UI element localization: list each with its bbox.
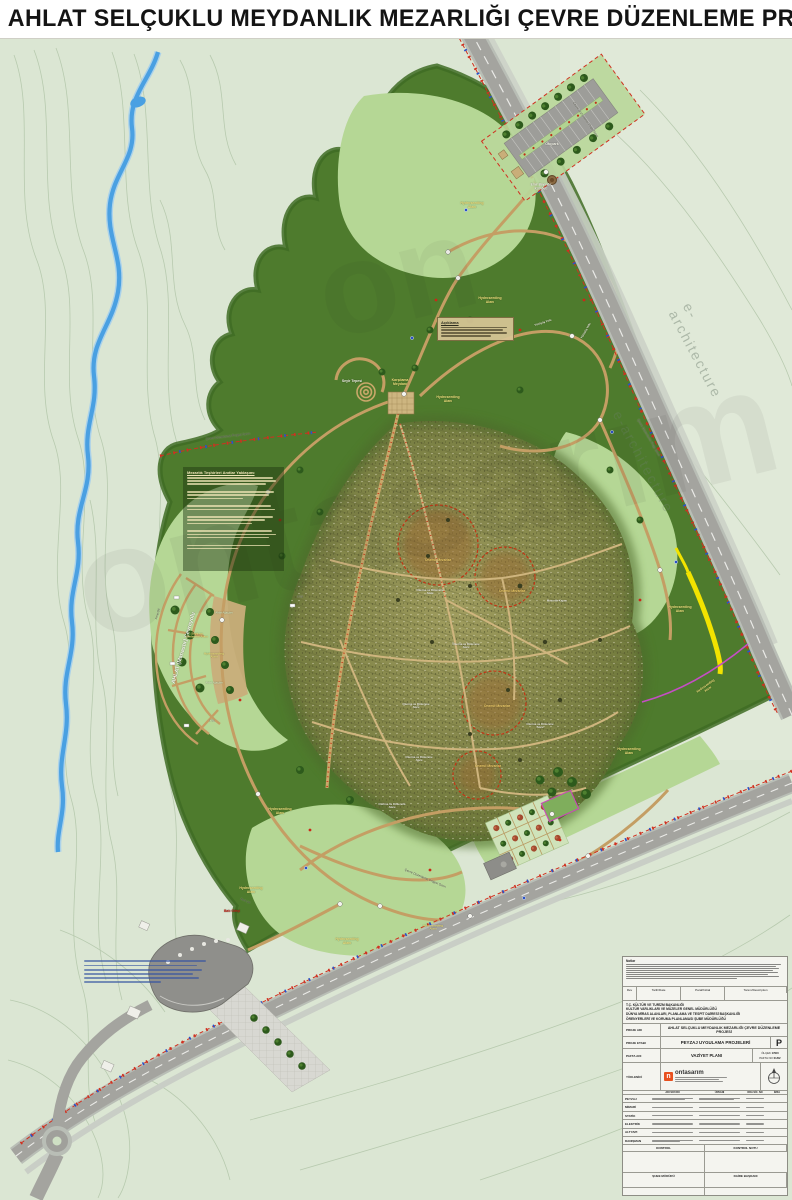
staff-col-sig: İMZA: [767, 1091, 787, 1094]
staff-row-statik: STATİK: [623, 1112, 787, 1120]
signature-section: ŞUBE MÜDÜRÜ DAİRE BAŞKANI: [623, 1173, 787, 1195]
ontasarim-logo-text: ontasarım: [675, 1070, 731, 1076]
staff-row-peyzaj: PEYZAJ: [623, 1095, 787, 1103]
revision-table: Rev Tarih/Date Paraf/Initial Tanım/Descr…: [623, 987, 787, 1001]
sube-muduru-label: ŞUBE MÜDÜRÜ: [623, 1173, 705, 1186]
aciklama-box: Açıklama: [437, 317, 514, 341]
project-name-label: PROJE ADI: [626, 1024, 661, 1036]
title-block-notes: Notlar: [623, 957, 787, 987]
project-stage-row: PROJE ETABI PEYZAJ UYGULAMA PROJELERİ P: [623, 1037, 787, 1049]
staff-row-elektrik: ELEKTRİK: [623, 1120, 787, 1128]
design-notes-box: Mezarlık Teşhirleri Anıtlar Yaklaşımı: [183, 467, 284, 571]
kontrol-section: KONTROL KONTROL NOTU: [623, 1145, 787, 1173]
project-stage-label: PROJE ETABI: [626, 1037, 661, 1048]
aciklama-heading: Açıklama: [441, 320, 510, 325]
ministry-line-4: ÖRENYERLERİ VE KORUMA PLANLAMASI ŞUBE MÜ…: [626, 1017, 784, 1022]
staff-col-title: ÜNVANI: [696, 1091, 743, 1094]
title-block: Notlar Rev Tarih/Date Paraf/Initial Tanı…: [622, 956, 788, 1196]
project-stage-value: PEYZAJ UYGULAMA PROJELERİ: [661, 1037, 770, 1048]
site-plan-sheet: ontasarım on e-architecture e-architectu…: [0, 0, 792, 1200]
contractor-logo: n ontasarım: [661, 1063, 760, 1090]
ontasarim-logo-icon: n: [664, 1072, 673, 1081]
karsilama-meydani-plaza: [388, 392, 414, 414]
staff-col-reg: ODA SİC. NO: [743, 1091, 767, 1094]
stage-code-badge: P: [770, 1037, 787, 1048]
staff-col-name: ADI SOYADI: [649, 1091, 696, 1094]
staff-row-altyapi: ALTYAPI: [623, 1129, 787, 1137]
sheet-name-row: PAFTA ADI VAZİYET PLANI ÖLÇEK 1/500 PAFT…: [623, 1049, 787, 1063]
daire-baskani-label: DAİRE BAŞKANI: [705, 1173, 787, 1186]
project-name-row: PROJE ADI AHLAT SELÇUKLU MEYDANLIK MEZAR…: [623, 1024, 787, 1037]
sheet-title-bar: AHLAT SELÇUKLU MEYDANLIK MEZARLIĞI ÇEVRE…: [0, 0, 792, 39]
staff-row-mimari: MİMARİ: [623, 1103, 787, 1111]
ministry-block: T.C. KÜLTÜR VE TURİZM BAKANLIĞI KÜLTÜR V…: [623, 1001, 787, 1024]
sheet-no-value: 01/02: [774, 1056, 781, 1060]
sheet-name-label: PAFTA ADI: [626, 1049, 661, 1062]
sheet-no-label: PAFTA NO: [759, 1056, 772, 1060]
sheet-title: AHLAT SELÇUKLU MEYDANLIK MEZARLIĞI ÇEVRE…: [0, 5, 792, 33]
project-name-value: AHLAT SELÇUKLU MEYDANLIK MEZARLIĞI ÇEVRE…: [661, 1024, 787, 1036]
north-arrow: [760, 1063, 787, 1090]
kumbet-monument: [548, 176, 557, 185]
contractor-label: YÜKLENİCİ: [626, 1063, 661, 1090]
design-notes-heading: Mezarlık Teşhirleri Anıtlar Yaklaşımı: [187, 470, 280, 475]
scale-value: 1/500: [772, 1051, 779, 1055]
scale-label: ÖLÇEK: [761, 1051, 770, 1055]
staff-row-danisman: DANIŞMAN: [623, 1137, 787, 1145]
sheet-name-value: VAZİYET PLANI: [661, 1049, 752, 1062]
title-block-notes-heading: Notlar: [626, 959, 784, 963]
contractor-row: YÜKLENİCİ n ontasarım: [623, 1063, 787, 1091]
scale-box: ÖLÇEK 1/500 PAFTA NO 01/02: [752, 1049, 787, 1062]
west-entrance-annotation: [84, 958, 212, 986]
